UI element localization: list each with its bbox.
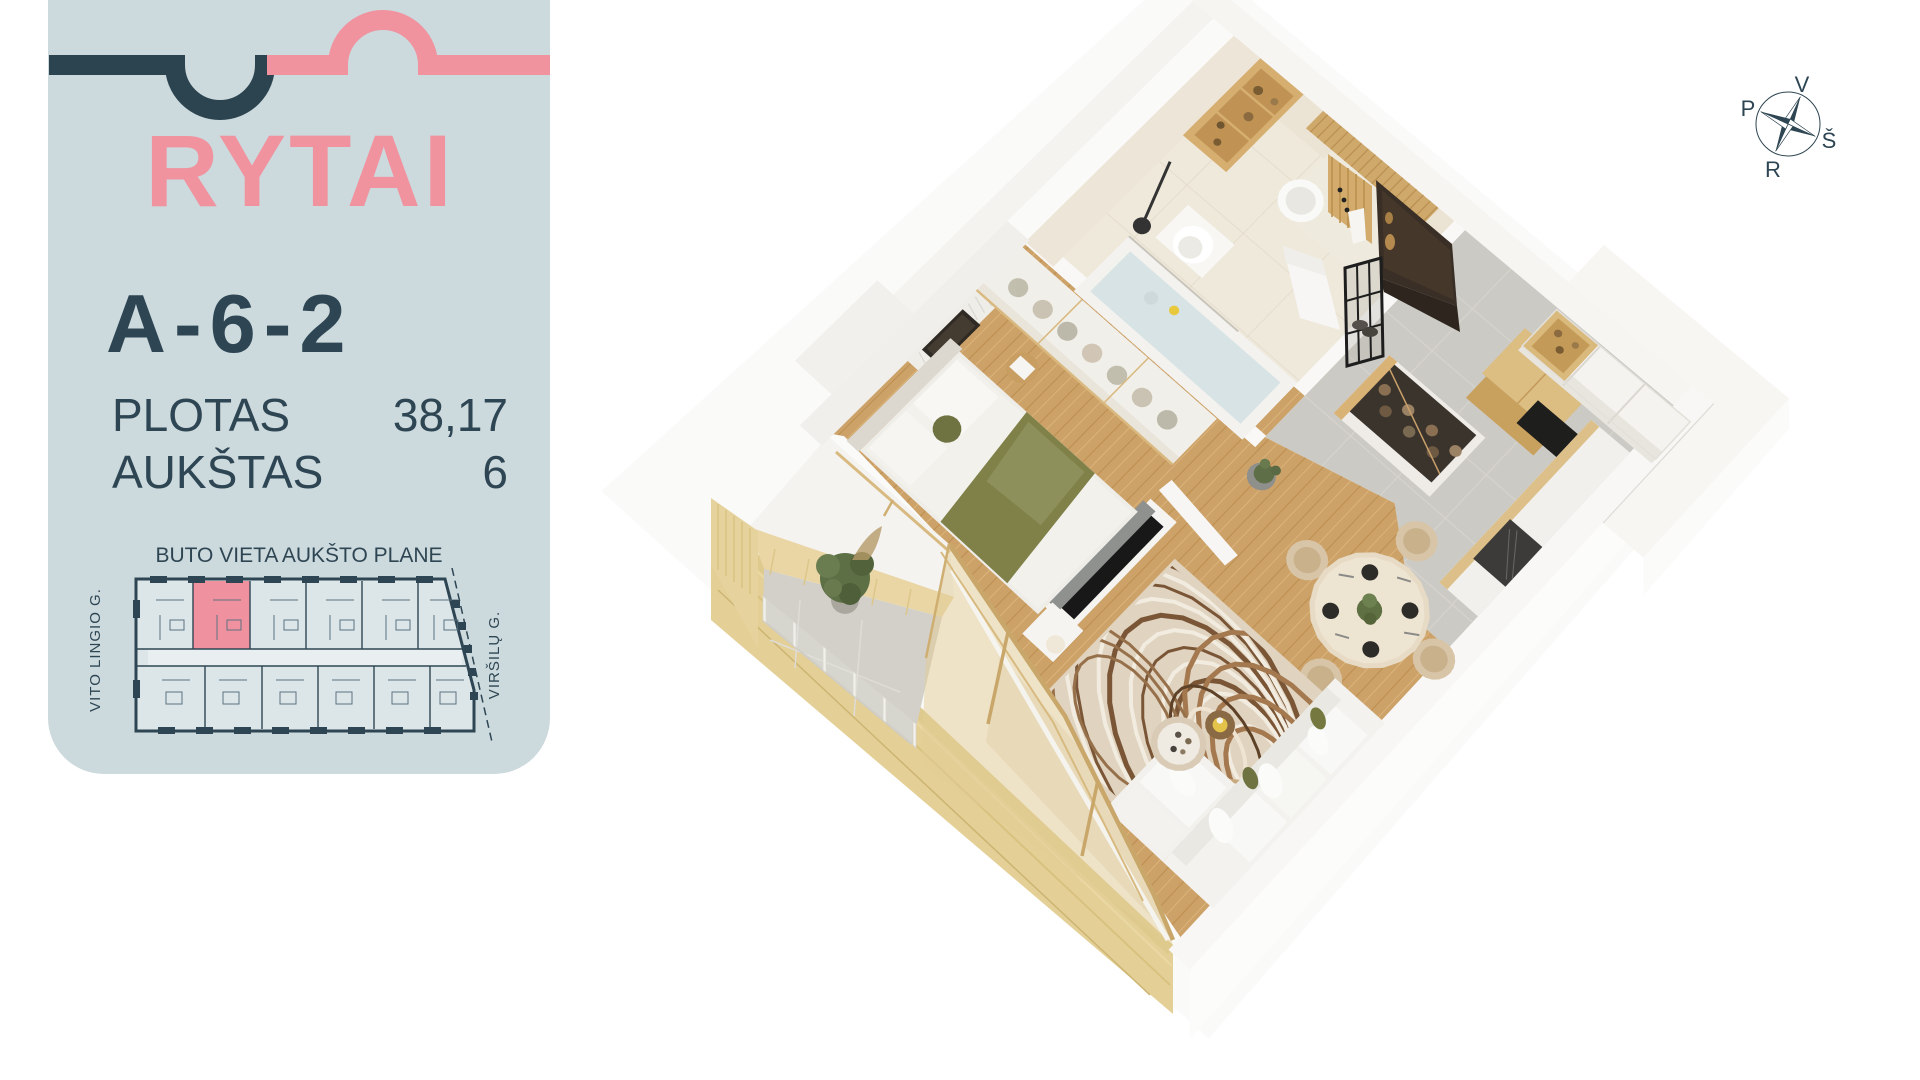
- svg-text:38,17: 38,17: [393, 389, 508, 441]
- svg-text:PLOTAS: PLOTAS: [112, 389, 290, 441]
- svg-text:A-6-2: A-6-2: [106, 277, 354, 370]
- svg-text:BUTO VIETA AUKŠTO PLANE: BUTO VIETA AUKŠTO PLANE: [155, 544, 442, 567]
- svg-text:R: R: [1765, 157, 1781, 182]
- svg-text:RYTAI: RYTAI: [145, 114, 455, 228]
- svg-text:V: V: [1795, 72, 1810, 97]
- svg-text:6: 6: [482, 446, 508, 498]
- svg-text:VITO LINGIO G.: VITO LINGIO G.: [87, 588, 104, 712]
- svg-text:AUKŠTAS: AUKŠTAS: [112, 446, 323, 498]
- svg-text:P: P: [1741, 96, 1756, 121]
- svg-text:Š: Š: [1822, 128, 1837, 153]
- svg-text:VIRŠILŲ G.: VIRŠILŲ G.: [486, 611, 503, 699]
